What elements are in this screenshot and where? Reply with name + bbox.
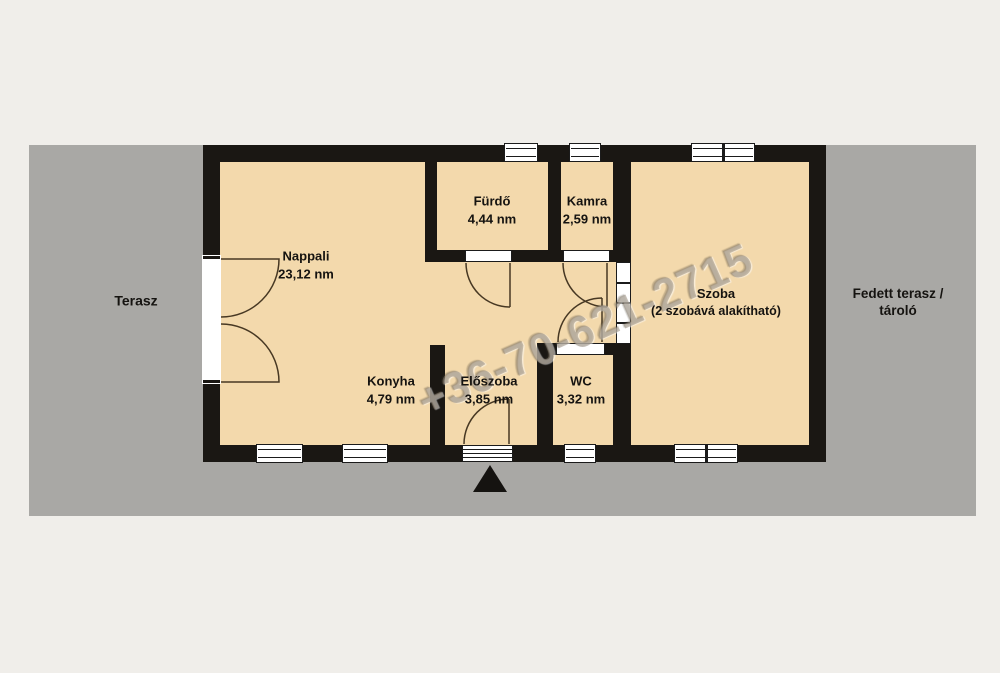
room-label-furdo: Fürdő 4,44 nm	[468, 192, 516, 227]
room-area: 23,12 nm	[278, 265, 334, 283]
room-label-eloszoba: Előszoba 3,85 nm	[460, 372, 517, 407]
terrace-label: Terasz	[114, 292, 157, 311]
terrace-door-leaf-bottom	[221, 324, 279, 382]
covered-terrace-label: Fedett terasz / tároló	[833, 286, 963, 320]
room-label-kamra: Kamra 2,59 nm	[563, 192, 611, 227]
room-name: Konyha	[367, 372, 415, 390]
room-area: 4,79 nm	[367, 390, 415, 408]
room-name: Előszoba	[460, 372, 517, 390]
room-label-wc: WC 3,32 nm	[557, 372, 605, 407]
floor-plan-image: +36-70-621-2715 Nappali 23,12 nm Fürdő 4…	[0, 0, 1000, 673]
room-area: 3,85 nm	[460, 390, 517, 408]
room-name: Kamra	[563, 192, 611, 210]
room-label-konyha: Konyha 4,79 nm	[367, 372, 415, 407]
room-label-nappali: Nappali 23,12 nm	[278, 247, 334, 282]
terrace-door-leaf-top	[221, 259, 279, 317]
room-area: 3,32 nm	[557, 390, 605, 408]
room-label-szoba: Szoba (2 szobává alakítható)	[651, 285, 781, 319]
room-area: 2,59 nm	[563, 210, 611, 228]
furdo-door-swing	[466, 263, 510, 307]
room-name: WC	[557, 372, 605, 390]
room-name: Fürdő	[468, 192, 516, 210]
door-swing-overlay	[0, 0, 1000, 673]
room-name: Nappali	[278, 247, 334, 265]
room-area: 4,44 nm	[468, 210, 516, 228]
room-note: (2 szobává alakítható)	[651, 302, 781, 319]
room-name: Szoba	[651, 285, 781, 303]
entrance-arrow-icon	[473, 465, 507, 492]
